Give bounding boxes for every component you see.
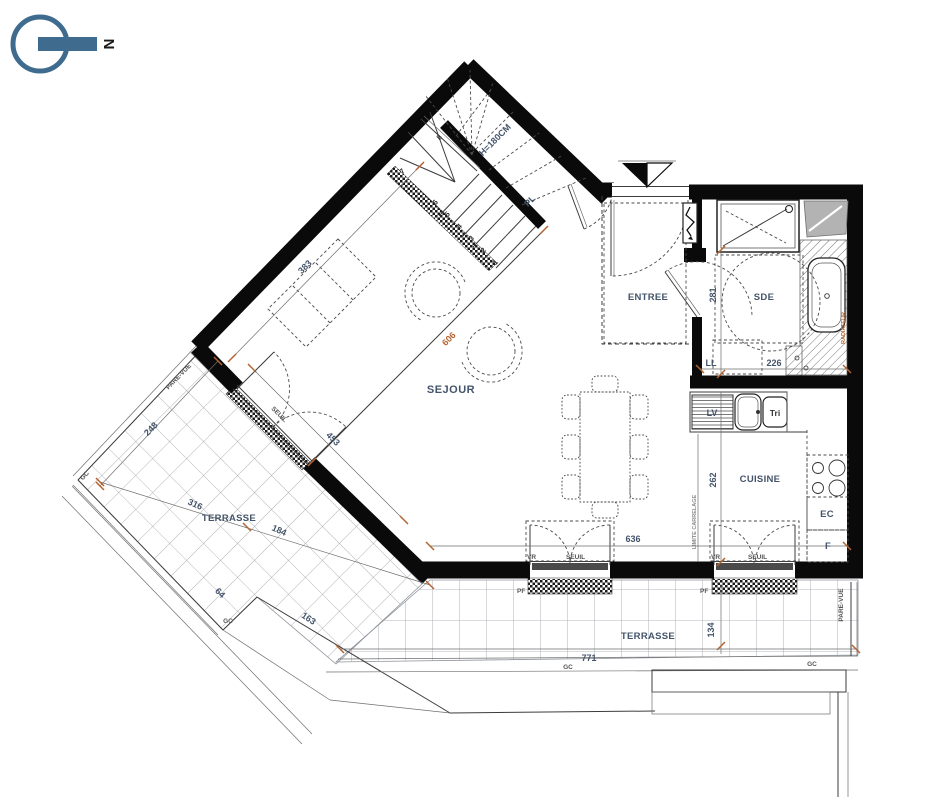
dim-636: 636 [625,534,640,544]
floor-plan-drawing: N SEJOUR ENTREE SDE CUISINE TERRASSE TER… [0,0,935,800]
french-door-right [710,521,799,579]
room-label-sejour: SEJOUR [427,384,475,396]
label-ec: EC [820,509,834,520]
floor-plan-page: N SEJOUR ENTREE SDE CUISINE TERRASSE TER… [0,0,935,800]
label-seuil-left: SEUIL [566,554,585,561]
label-lv: LV [707,408,718,418]
label-gc-south-2: GC [807,661,817,668]
label-pf-left: PF [517,588,525,595]
entrance-door [611,161,689,276]
dim-771: 771 [581,653,596,663]
label-limite-carrelage: LIMITE CARRELAGE [692,494,698,549]
label-gc-south-1: GC [563,664,573,671]
sink-icon [735,394,761,430]
terrace-left-tiles [78,312,422,664]
label-tri: Tri [770,408,780,418]
washbasin-icon [808,258,845,332]
dim-606: 606 [440,330,458,348]
dim-453: 453 [324,430,342,448]
room-label-cuisine: CUISINE [740,474,781,485]
label-seuil-right: SEUIL [748,554,767,561]
armchair-icon [462,324,522,382]
label-pare-vue-right: PARE-VUE [838,588,845,622]
label-radiateur: RADIATEUR [841,312,847,344]
label-ll: LL [706,358,717,368]
label-f: F [825,541,831,552]
label-stair-height: H=180CM [477,122,513,158]
dim-262: 262 [708,472,718,487]
north-indicator: N [13,17,117,71]
room-label-sde: SDE [754,292,774,303]
north-letter: N [100,39,117,50]
room-label-terrasse-bottom: TERRASSE [621,631,675,642]
label-pf-right: PF [700,588,708,595]
armchair-icon [405,262,465,320]
shower-icon [717,200,799,252]
french-door-left [526,521,614,579]
entree-zone [602,196,692,344]
dim-134: 134 [706,622,716,637]
dim-226: 226 [766,358,781,368]
label-gc-notch: GC [223,618,233,625]
north-arrow-icon [38,37,97,51]
room-label-terrasse-left: TERRASSE [202,513,256,524]
label-vr-right: VR [711,554,720,561]
stair-step-8: 8 [435,133,444,142]
label-vr-left: VR [527,554,536,561]
dim-281: 281 [708,287,718,302]
room-label-entree: ENTREE [628,292,668,303]
dining-table-icon [562,376,648,518]
dim-383: 383 [296,258,314,276]
